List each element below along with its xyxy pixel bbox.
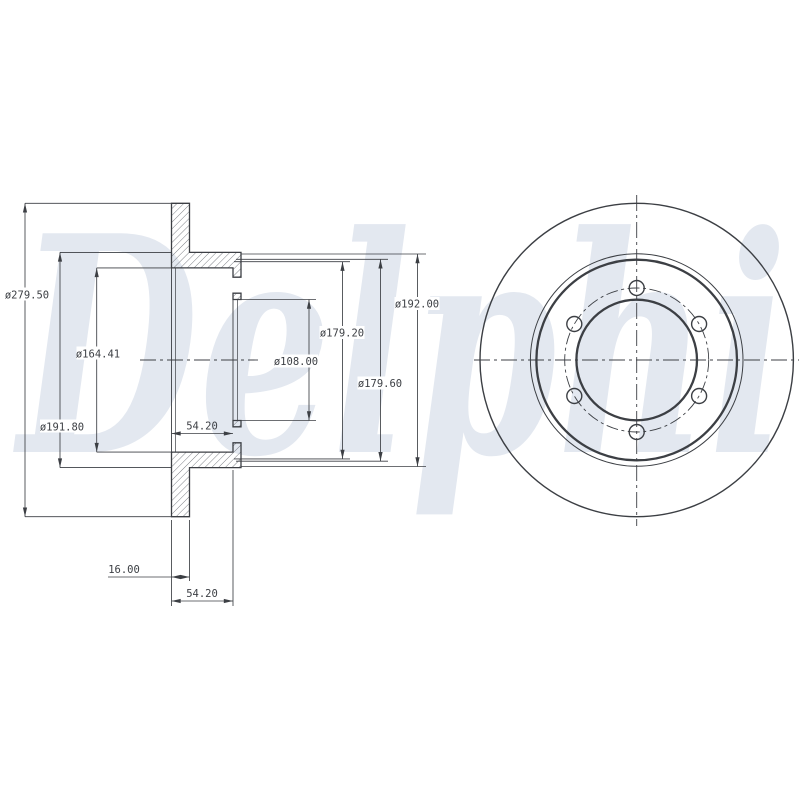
dim-label-hat-step-diameter: ø179.20 [320, 328, 364, 340]
dim-label-ring-inner-diameter: ø191.80 [40, 422, 84, 434]
dim-label-hat-offset: 54.20 [186, 421, 218, 433]
dim-label-disc-thickness: 16.00 [108, 564, 140, 576]
dim-label-overall-height: 54.20 [186, 588, 218, 600]
technical-drawing-page: Delphi ø279.50 [0, 0, 800, 800]
dim-label-hat-outer-diameter: ø192.00 [395, 299, 439, 311]
dim-label-hat-inner-diameter: ø164.41 [76, 349, 120, 361]
section-hub-sliver-top [233, 293, 241, 299]
dim-label-outer-diameter: ø279.50 [5, 290, 49, 302]
dim-label-hat-register-diameter: ø179.60 [358, 378, 402, 390]
delphi-watermark: Delphi [11, 170, 788, 523]
section-hub-sliver-bottom [233, 421, 241, 427]
brake-disc-technical-drawing: Delphi ø279.50 [0, 0, 800, 800]
dim-label-centre-bore: ø108.00 [274, 356, 318, 368]
